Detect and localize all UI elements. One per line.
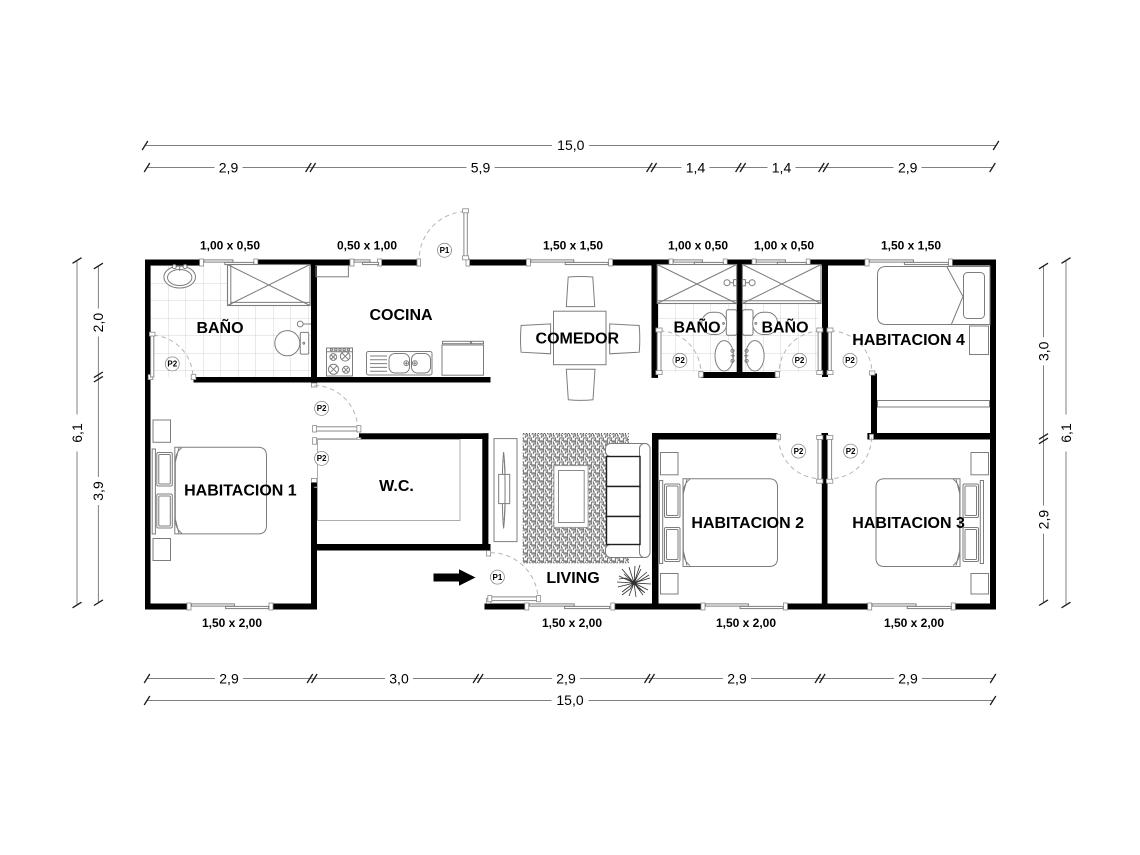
svg-text:BAÑO: BAÑO bbox=[761, 316, 808, 336]
svg-text:COMEDOR: COMEDOR bbox=[536, 330, 620, 347]
svg-text:1,50 x 1,50: 1,50 x 1,50 bbox=[543, 239, 603, 253]
svg-text:3,0: 3,0 bbox=[1035, 341, 1051, 361]
svg-text:2,9: 2,9 bbox=[727, 671, 747, 687]
svg-text:1,00 x 0,50: 1,00 x 0,50 bbox=[668, 239, 728, 253]
svg-text:W.C.: W.C. bbox=[379, 478, 414, 495]
svg-text:2,9: 2,9 bbox=[898, 160, 918, 176]
svg-text:LIVING: LIVING bbox=[546, 570, 599, 587]
svg-text:P1: P1 bbox=[440, 246, 450, 255]
svg-text:1,50 x 2,00: 1,50 x 2,00 bbox=[716, 616, 776, 630]
svg-text:0,50 x 1,00: 0,50 x 1,00 bbox=[337, 239, 397, 253]
svg-text:6,1: 6,1 bbox=[1058, 423, 1074, 443]
svg-text:1,50 x 2,00: 1,50 x 2,00 bbox=[884, 616, 944, 630]
svg-text:P2: P2 bbox=[317, 404, 327, 413]
svg-text:COCINA: COCINA bbox=[369, 307, 433, 324]
svg-text:HABITACION 1: HABITACION 1 bbox=[184, 482, 297, 499]
svg-text:15,0: 15,0 bbox=[556, 692, 583, 708]
svg-text:P2: P2 bbox=[795, 356, 805, 365]
svg-text:3,0: 3,0 bbox=[389, 671, 409, 687]
svg-text:1,50 x 2,00: 1,50 x 2,00 bbox=[542, 616, 602, 630]
svg-text:2,0: 2,0 bbox=[90, 313, 106, 333]
svg-text:HABITACION 3: HABITACION 3 bbox=[852, 515, 965, 532]
svg-text:BAÑO: BAÑO bbox=[196, 317, 243, 337]
svg-text:1,50 x 2,00: 1,50 x 2,00 bbox=[202, 616, 262, 630]
svg-text:1,4: 1,4 bbox=[686, 160, 706, 176]
svg-text:5,9: 5,9 bbox=[471, 160, 491, 176]
svg-text:1,00 x 0,50: 1,00 x 0,50 bbox=[754, 239, 814, 253]
svg-text:2,9: 2,9 bbox=[219, 671, 239, 687]
svg-text:1,00 x 0,50: 1,00 x 0,50 bbox=[200, 239, 260, 253]
svg-text:6,1: 6,1 bbox=[69, 423, 85, 443]
svg-text:2,9: 2,9 bbox=[1035, 510, 1051, 530]
svg-text:2,9: 2,9 bbox=[556, 671, 576, 687]
svg-text:BAÑO: BAÑO bbox=[673, 316, 720, 336]
svg-text:HABITACION 4: HABITACION 4 bbox=[852, 332, 965, 349]
svg-text:P2: P2 bbox=[845, 356, 855, 365]
svg-text:2,9: 2,9 bbox=[219, 160, 239, 176]
svg-text:P2: P2 bbox=[794, 447, 804, 456]
svg-text:HABITACION 2: HABITACION 2 bbox=[691, 515, 804, 532]
svg-text:1,4: 1,4 bbox=[772, 160, 792, 176]
svg-text:P2: P2 bbox=[675, 356, 685, 365]
svg-text:P2: P2 bbox=[317, 454, 327, 463]
svg-text:P1: P1 bbox=[493, 573, 503, 582]
svg-text:15,0: 15,0 bbox=[557, 137, 584, 153]
svg-text:P2: P2 bbox=[846, 447, 856, 456]
svg-text:2,9: 2,9 bbox=[898, 671, 918, 687]
svg-text:1,50 x 1,50: 1,50 x 1,50 bbox=[881, 239, 941, 253]
svg-text:3,9: 3,9 bbox=[90, 481, 106, 501]
svg-text:P2: P2 bbox=[167, 360, 177, 369]
